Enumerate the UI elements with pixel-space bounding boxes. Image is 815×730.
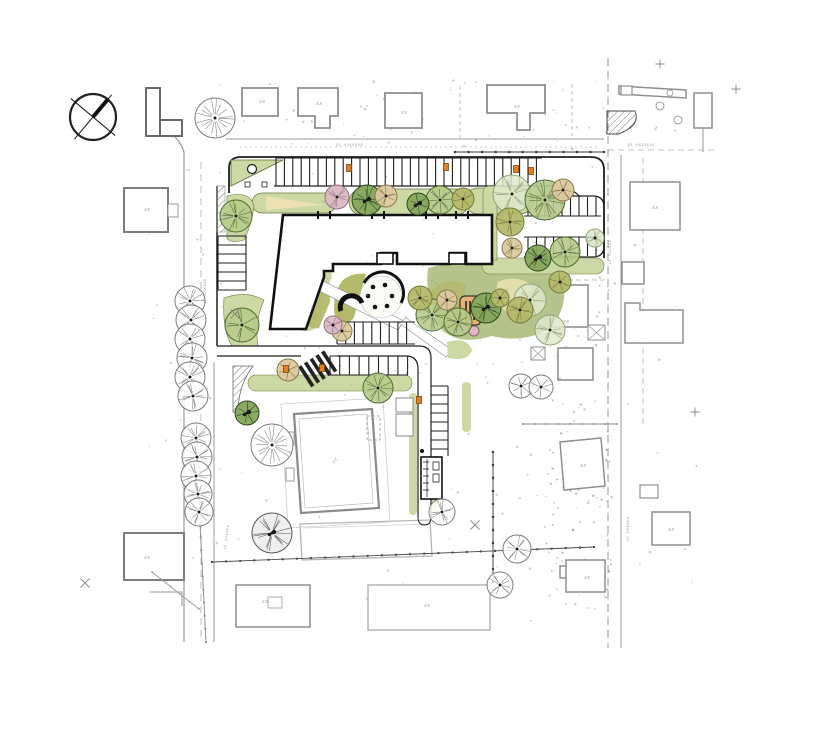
orange-bollard-marker	[514, 166, 519, 173]
tree-gray	[503, 535, 531, 563]
sidewalk-hatch-ne	[607, 111, 636, 134]
play-post-1	[371, 285, 376, 290]
tree-green	[550, 237, 580, 267]
building-code-label: xx	[143, 555, 151, 561]
entry-post-1	[245, 182, 250, 187]
building-code-label: xx	[562, 319, 570, 325]
tree-tan	[502, 238, 522, 258]
street-name-label: ul. xxxxxx	[222, 524, 230, 549]
tree-pink	[325, 185, 349, 209]
tree-gray	[429, 499, 455, 525]
play-post-2	[383, 283, 388, 288]
east-mid-building-2	[558, 348, 593, 380]
building-code-label: xx	[667, 527, 675, 533]
building-code-label: xx	[315, 101, 323, 107]
tree-darkgreen	[407, 193, 429, 215]
entry-green-triangle	[231, 160, 283, 186]
building-code-label: xx	[261, 599, 269, 605]
site-plan-page: pl. xxxxxxxpl. xxxxxxxul. xxxxxxul. xxxx…	[0, 0, 815, 730]
tree-olive	[408, 286, 432, 310]
east-building-2	[625, 303, 683, 343]
orange-bollard-marker	[444, 164, 449, 171]
building-code-label: xx	[258, 99, 266, 105]
orange-bollard-marker	[347, 165, 352, 172]
building-code-label: xx	[651, 205, 659, 211]
play-post-4	[385, 304, 390, 309]
parking-row-west	[218, 236, 246, 290]
survey-cross	[81, 579, 90, 588]
tree-olive	[496, 208, 524, 236]
west-building-2-step	[150, 592, 182, 606]
tree-pink	[324, 316, 342, 334]
building-code-label: xx	[579, 463, 587, 469]
parking-row-south-road	[431, 386, 448, 456]
tree-graydark	[252, 513, 292, 553]
survey-cross	[732, 85, 741, 94]
fence-se-vertical	[492, 451, 494, 583]
building-code-label: xx	[143, 207, 151, 213]
school-stair-2	[286, 468, 294, 481]
tree-tan	[375, 185, 397, 207]
tree-olive	[491, 289, 509, 307]
green-junction	[447, 340, 472, 359]
play-post-5	[373, 305, 378, 310]
tree-tan	[552, 179, 574, 201]
tree-gray	[185, 498, 213, 526]
survey-cross	[656, 60, 665, 69]
orange-bollard-marker	[284, 366, 289, 373]
building-code-label: xx	[400, 110, 408, 116]
survey-cross	[471, 521, 480, 530]
shed-1	[396, 398, 413, 412]
tree-gray	[195, 98, 235, 138]
tree-olive	[452, 188, 474, 210]
street-name-label: pl. xxxxxxx	[335, 142, 363, 147]
street-name-label: pl. xxxxxxx	[627, 142, 655, 147]
tree-darkgreen	[525, 245, 551, 271]
street-name-label: ul. xxxxxx	[202, 278, 207, 303]
building-code-label: xx	[185, 168, 191, 172]
tree-gray	[251, 424, 293, 466]
tree-pale	[586, 229, 604, 247]
se-square-shed	[640, 485, 658, 498]
orange-bollard-marker	[529, 168, 534, 175]
north-arrow-icon	[70, 94, 116, 140]
tree-green	[225, 308, 259, 342]
east-square-shed	[622, 262, 644, 284]
site-plan-canvas: pl. xxxxxxxpl. xxxxxxxul. xxxxxxul. xxxx…	[0, 0, 815, 730]
survey-cross	[691, 408, 700, 417]
tree-green	[363, 373, 393, 403]
street-name-label: ul. xxxxxx	[607, 239, 612, 264]
tree-shrub	[656, 102, 664, 110]
tree-gray	[178, 381, 208, 411]
tree-pale	[493, 175, 531, 213]
tree-shrub	[674, 116, 682, 124]
green-road-e2	[462, 382, 471, 432]
tree-olive	[507, 297, 533, 323]
context-buildings-layer	[124, 58, 714, 648]
orange-bollard-marker	[320, 365, 325, 372]
ne-right-building	[694, 93, 712, 128]
ne-strip-annex	[621, 86, 632, 95]
entry-post-2	[262, 182, 267, 187]
nw-corner-building	[146, 88, 182, 136]
fence-sw-street	[199, 523, 207, 643]
se-building-3	[560, 560, 605, 592]
parking-row-court-lower	[330, 356, 408, 375]
tree-gray	[529, 375, 553, 399]
west-building-1-stair	[168, 204, 178, 217]
tree-darkgreen	[235, 401, 259, 425]
play-post-3	[390, 294, 395, 299]
tree-green	[426, 186, 454, 214]
building-code-label: xx	[513, 104, 521, 110]
building-code-label: xx	[583, 575, 591, 581]
building-code-label: xx	[423, 603, 431, 609]
tree-olive	[549, 271, 571, 293]
main-building-stair-1	[377, 253, 393, 264]
south-building-3	[236, 585, 310, 627]
entry-bollard-circle	[248, 165, 257, 174]
tree-green	[444, 308, 472, 336]
fence-north-street	[454, 151, 605, 153]
street-name-label: ul. xxxxxx	[625, 516, 630, 541]
tree-gray	[487, 572, 513, 598]
waste-bollard	[420, 449, 424, 453]
shed-2	[396, 414, 413, 436]
tree-green	[220, 200, 252, 232]
main-building-stair-2	[449, 253, 465, 264]
orange-bollard-marker	[417, 397, 422, 404]
tree-pale	[535, 315, 565, 345]
fence-se-horizontal	[522, 423, 618, 425]
west-building-2	[124, 533, 184, 580]
tree-tan	[437, 290, 457, 310]
